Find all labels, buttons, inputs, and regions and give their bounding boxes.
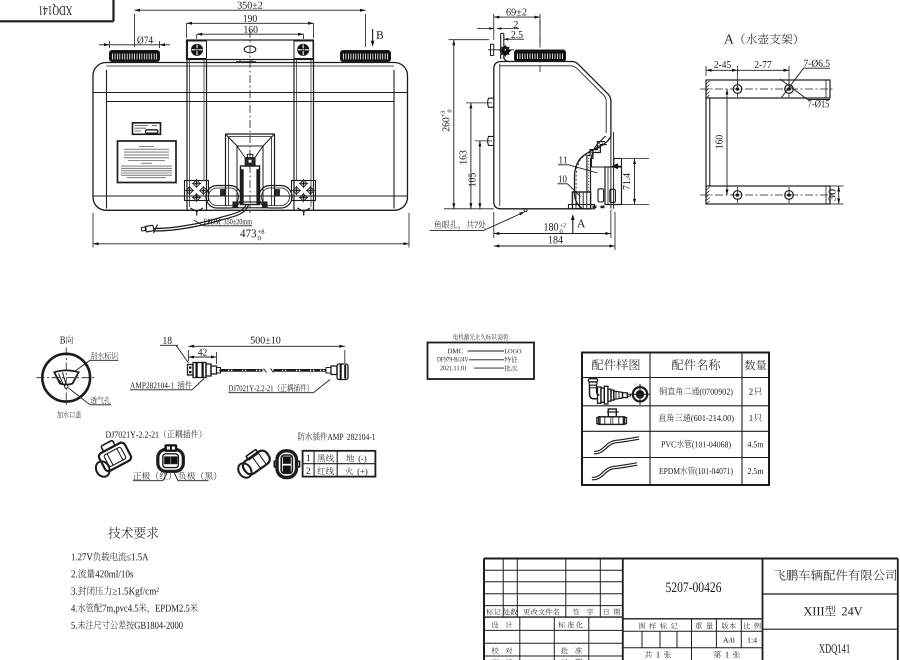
svg-text:A-A: A-A <box>634 382 642 387</box>
